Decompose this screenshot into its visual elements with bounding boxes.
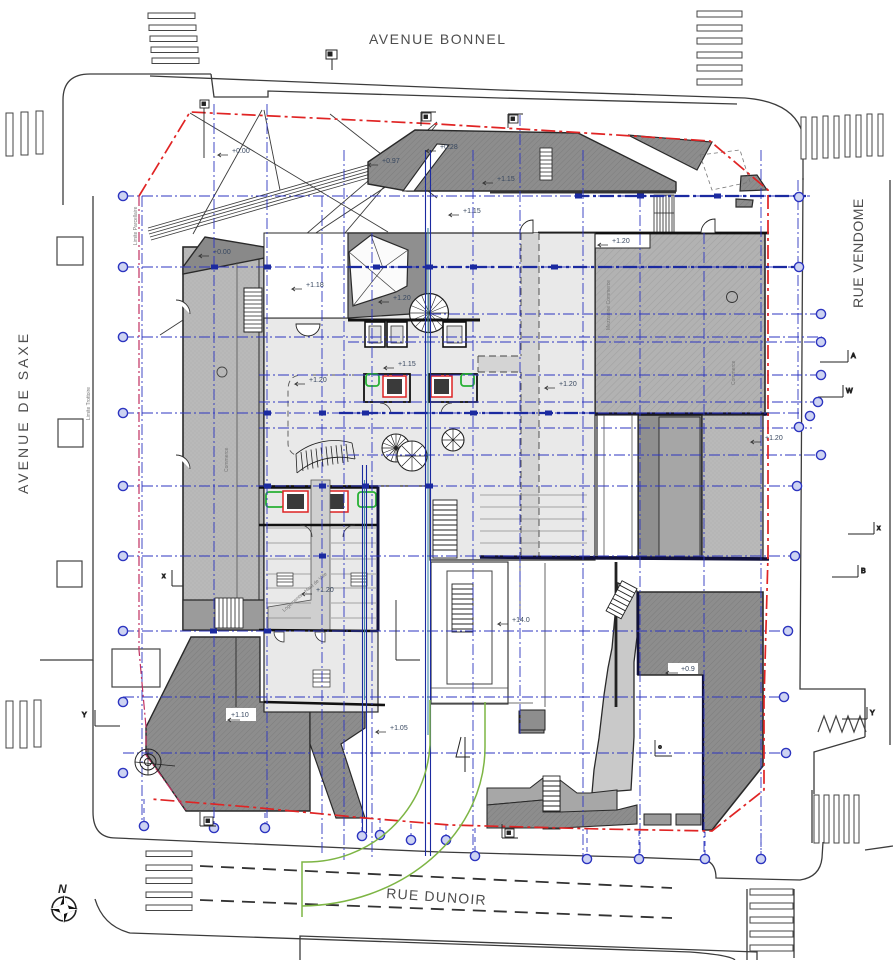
svg-text:x: x: [162, 573, 166, 580]
svg-text:W: W: [846, 388, 853, 395]
svg-text:Mezzanine Commerce: Mezzanine Commerce: [606, 280, 612, 330]
svg-text:+1.10: +1.10: [231, 712, 249, 719]
svg-text:Limite Parcellaire: Limite Parcellaire: [133, 206, 139, 245]
svg-text:+14.0: +14.0: [512, 617, 530, 624]
svg-text:+1.20: +1.20: [612, 238, 630, 245]
svg-text:+1.20: +1.20: [393, 295, 411, 302]
svg-text:+1.15: +1.15: [497, 176, 515, 183]
svg-text:+1.20: +1.20: [559, 381, 577, 388]
svg-text:B: B: [861, 568, 866, 575]
svg-text:x: x: [877, 525, 881, 532]
svg-text:Commerce: Commerce: [224, 447, 230, 472]
svg-text:+1.05: +1.05: [390, 725, 408, 732]
svg-text:A: A: [851, 353, 856, 360]
svg-text:AVENUE DE SAXE: AVENUE DE SAXE: [15, 331, 31, 494]
svg-text:+0.00: +0.00: [232, 148, 250, 155]
svg-text:+1.20: +1.20: [309, 377, 327, 384]
svg-text:+1.20: +1.20: [765, 435, 783, 442]
svg-text:Limite Trottoire: Limite Trottoire: [86, 387, 92, 420]
svg-text:Y: Y: [82, 712, 87, 719]
svg-text:+0.28: +0.28: [440, 144, 458, 151]
svg-text:Commerce: Commerce: [731, 360, 737, 385]
svg-text:AVENUE BONNEL: AVENUE BONNEL: [369, 31, 507, 47]
svg-text:N: N: [58, 882, 67, 896]
svg-text:+0.9: +0.9: [681, 666, 695, 673]
svg-text:Y: Y: [870, 710, 875, 717]
svg-text:+1.15: +1.15: [398, 361, 416, 368]
svg-text:+1.15: +1.15: [463, 208, 481, 215]
svg-text:RUE VENDOME: RUE VENDOME: [850, 198, 866, 308]
svg-text:+0.00: +0.00: [213, 249, 231, 256]
svg-text:+0.97: +0.97: [382, 158, 400, 165]
svg-text:+1.18: +1.18: [306, 282, 324, 289]
svg-text:+1.20: +1.20: [316, 587, 334, 594]
